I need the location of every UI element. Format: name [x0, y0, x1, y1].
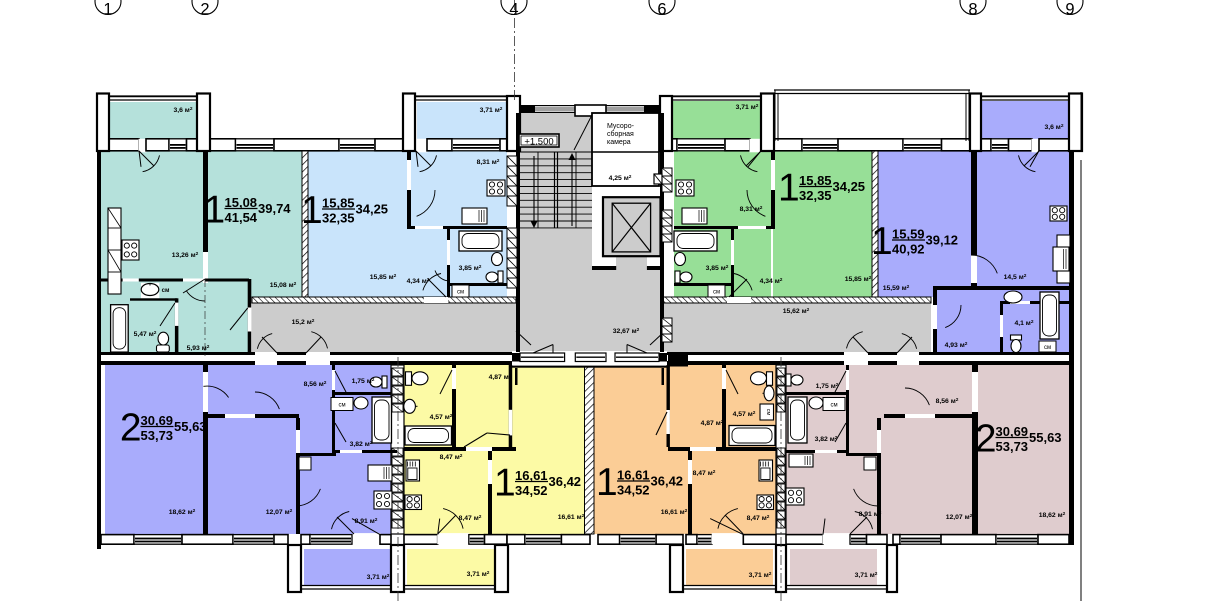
svg-text:8,56 м2: 8,56 м2: [304, 380, 327, 388]
svg-text:8,31 м2: 8,31 м2: [477, 158, 500, 166]
svg-text:8,91 м2: 8,91 м2: [355, 517, 378, 525]
svg-text:8,47 м2: 8,47 м2: [459, 514, 482, 522]
svg-text:8,47 м2: 8,47 м2: [747, 514, 770, 522]
svg-text:3,85 м2: 3,85 м2: [459, 264, 482, 272]
svg-text:32,35: 32,35: [799, 188, 832, 203]
svg-text:16,61 м2: 16,61 м2: [661, 508, 688, 516]
svg-text:см: см: [830, 403, 837, 409]
svg-text:39,74: 39,74: [258, 201, 291, 216]
svg-text:40,92: 40,92: [892, 242, 925, 257]
svg-text:1: 1: [494, 462, 516, 505]
svg-text:53,73: 53,73: [141, 428, 174, 443]
svg-text:1: 1: [778, 167, 800, 210]
svg-text:4,57 м2: 4,57 м2: [430, 413, 453, 421]
svg-text:1: 1: [596, 461, 618, 504]
svg-text:39,12: 39,12: [926, 233, 959, 248]
svg-text:1: 1: [301, 189, 323, 232]
svg-text:18,62 м2: 18,62 м2: [1039, 511, 1066, 519]
svg-text:1: 1: [103, 0, 112, 18]
svg-text:3,82 м2: 3,82 м2: [350, 440, 373, 448]
svg-text:4,34 м2: 4,34 м2: [407, 277, 430, 285]
svg-text:3,85 м2: 3,85 м2: [706, 264, 729, 272]
svg-text:41,54: 41,54: [225, 210, 258, 225]
svg-text:53,73: 53,73: [996, 439, 1029, 454]
svg-text:15,62 м2: 15,62 м2: [783, 307, 810, 315]
svg-text:3,82 м2: 3,82 м2: [815, 435, 838, 443]
svg-text:8,47 м2: 8,47 м2: [693, 469, 716, 477]
svg-text:1: 1: [204, 189, 226, 232]
svg-text:8,56 м2: 8,56 м2: [936, 397, 959, 405]
svg-text:4,57 м2: 4,57 м2: [733, 410, 756, 418]
svg-text:32,67 м2: 32,67 м2: [613, 327, 640, 335]
svg-text:Мусоро-: Мусоро-: [607, 123, 635, 130]
svg-text:18,62 м2: 18,62 м2: [169, 508, 196, 516]
svg-text:34,52: 34,52: [617, 483, 650, 498]
svg-text:34,25: 34,25: [356, 202, 389, 217]
svg-text:12,07 м2: 12,07 м2: [266, 508, 293, 516]
svg-text:3,71 м2: 3,71 м2: [367, 573, 390, 581]
svg-text:36,42: 36,42: [651, 474, 684, 489]
svg-text:3,71 м2: 3,71 м2: [480, 106, 503, 114]
svg-text:15,59 м2: 15,59 м2: [883, 284, 910, 292]
svg-text:8: 8: [968, 0, 977, 18]
svg-text:3,71 м2: 3,71 м2: [749, 571, 772, 579]
svg-text:36,42: 36,42: [549, 474, 582, 489]
svg-text:34,52: 34,52: [515, 483, 548, 498]
svg-text:4,34 м2: 4,34 м2: [760, 277, 783, 285]
svg-text:8,91 м2: 8,91 м2: [859, 510, 882, 518]
svg-text:1,75 м2: 1,75 м2: [816, 382, 839, 390]
svg-text:15,85 м2: 15,85 м2: [370, 273, 397, 281]
svg-text:1: 1: [871, 220, 893, 263]
svg-text:5,47 м2: 5,47 м2: [134, 330, 157, 338]
svg-text:см: см: [1044, 345, 1051, 351]
svg-text:15,08 м2: 15,08 м2: [270, 281, 297, 289]
svg-text:см: см: [713, 290, 720, 296]
svg-text:см: см: [765, 409, 771, 416]
svg-text:14,5 м2: 14,5 м2: [1004, 273, 1027, 281]
svg-text:2: 2: [200, 0, 209, 18]
svg-text:см: см: [338, 403, 345, 409]
svg-text:см: см: [457, 290, 464, 296]
svg-text:4: 4: [509, 0, 518, 18]
svg-text:2: 2: [120, 407, 142, 450]
svg-text:8,47 м2: 8,47 м2: [440, 453, 463, 461]
svg-text:9: 9: [1065, 0, 1074, 18]
svg-text:16,61 м2: 16,61 м2: [558, 513, 585, 521]
svg-text:4,93 м2: 4,93 м2: [945, 341, 968, 349]
svg-text:32,35: 32,35: [322, 211, 355, 226]
svg-text:55,63: 55,63: [174, 419, 207, 434]
svg-text:12,07 м2: 12,07 м2: [946, 513, 973, 521]
svg-text:34,25: 34,25: [833, 179, 866, 194]
svg-text:6: 6: [657, 0, 666, 18]
svg-text:5,93 м2: 5,93 м2: [187, 344, 210, 352]
svg-text:15,85 м2: 15,85 м2: [845, 275, 872, 283]
svg-text:3,71 м2: 3,71 м2: [855, 571, 878, 579]
svg-text:3,71 м2: 3,71 м2: [736, 103, 759, 111]
svg-text:камера: камера: [607, 139, 631, 146]
svg-text:13,26 м2: 13,26 м2: [172, 251, 199, 259]
svg-text:8,31 м2: 8,31 м2: [740, 205, 763, 213]
svg-text:см: см: [162, 288, 170, 294]
svg-text:4,87 м2: 4,87 м2: [701, 419, 724, 427]
svg-text:+1.500: +1.500: [524, 137, 553, 148]
svg-text:сборная: сборная: [607, 130, 634, 138]
svg-text:4,87 м2: 4,87 м2: [489, 373, 512, 381]
svg-text:1,75 м2: 1,75 м2: [352, 377, 375, 385]
svg-text:2: 2: [975, 418, 997, 461]
svg-text:4,25 м2: 4,25 м2: [609, 174, 632, 182]
svg-text:3,71 м2: 3,71 м2: [467, 570, 490, 578]
svg-text:15,2 м2: 15,2 м2: [292, 318, 315, 326]
svg-text:55,63: 55,63: [1029, 430, 1062, 445]
